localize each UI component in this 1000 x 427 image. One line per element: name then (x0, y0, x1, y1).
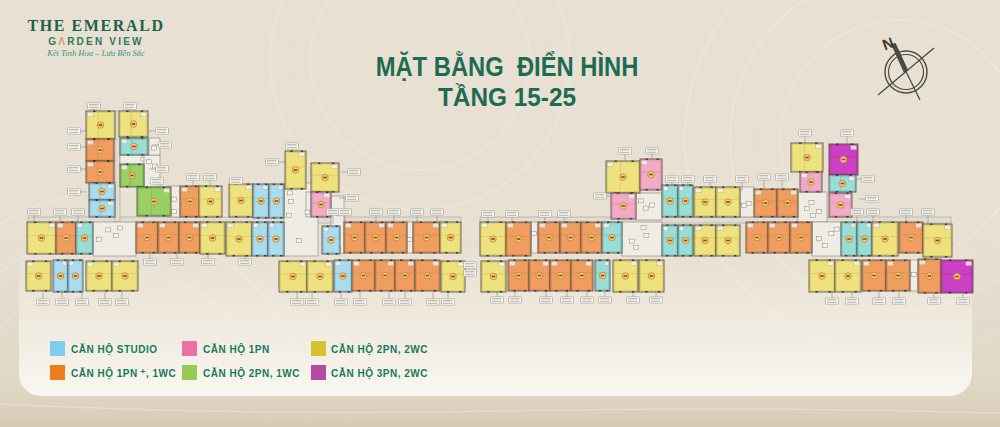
svg-text:N: N (880, 34, 896, 54)
